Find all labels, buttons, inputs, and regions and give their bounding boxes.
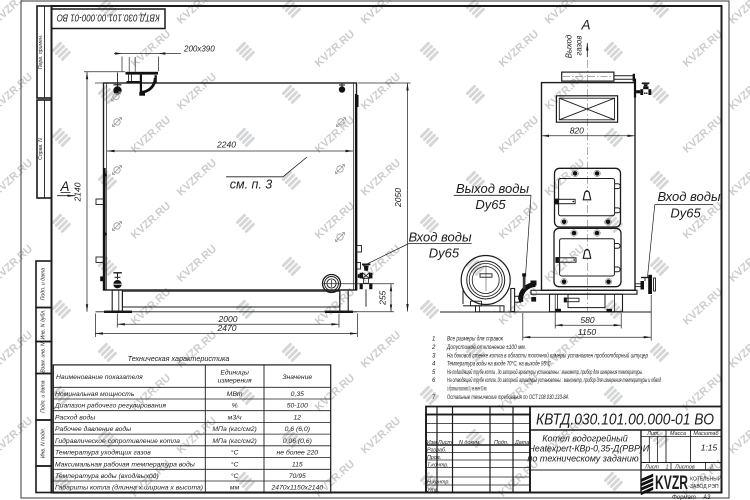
svg-text:Перв. примен.: Перв. примен. — [38, 35, 44, 69]
svg-text:Единицы: Единицы — [220, 369, 248, 377]
svg-text:Формат: Формат — [672, 495, 696, 500]
svg-text:На подводящей трубе котла ,: На подводящей трубе котла , до запорной … — [447, 369, 643, 376]
svg-text:МПа (кгс/см2): МПа (кгс/см2) — [212, 438, 256, 445]
svg-text:Рабочее давление воды: Рабочее давление воды — [55, 425, 131, 433]
svg-text:50-100: 50-100 — [287, 403, 308, 410]
svg-text:На отводящей трубе котла ,до з: На отводящей трубе котла ,до запорной ар… — [447, 377, 661, 384]
svg-text:115: 115 — [292, 461, 303, 468]
svg-text:Лит.: Лит. — [646, 431, 660, 437]
svg-text:°С: °С — [231, 460, 239, 468]
svg-text:Вход воды: Вход воды — [408, 230, 472, 245]
svg-text:2470х1150х2140: 2470х1150х2140 — [270, 485, 323, 492]
svg-text:м3/ч: м3/ч — [228, 414, 242, 421]
svg-text:820: 820 — [570, 126, 584, 136]
svg-text:°С: °С — [231, 449, 239, 457]
svg-text:255: 255 — [378, 290, 388, 305]
svg-text:Инв. N дубл.: Инв. N дубл. — [41, 309, 47, 339]
svg-text:не более 220: не более 220 — [277, 449, 319, 457]
svg-text:Все размеры для справок: Все размеры для справок — [447, 337, 504, 343]
svg-text:мм: мм — [230, 485, 240, 492]
svg-text:А3: А3 — [702, 495, 711, 500]
svg-text:Лист: Лист — [644, 464, 659, 470]
svg-text:2: 2 — [709, 464, 713, 470]
svg-text:ЗАВОД РЭП: ЗАВОД РЭП — [690, 484, 719, 490]
svg-text:Расход воды: Расход воды — [55, 413, 95, 421]
svg-text:Взам. инв. N: Взам. инв. N — [41, 342, 47, 372]
svg-text:2050: 2050 — [393, 188, 403, 208]
svg-text:Разраб.: Разраб. — [427, 447, 447, 453]
svg-text:КОТЕЛЬНЫЙ: КОТЕЛЬНЫЙ — [690, 475, 722, 483]
svg-text:Dy65: Dy65 — [670, 206, 701, 221]
svg-text:2240: 2240 — [216, 140, 236, 150]
svg-text:Диапазон рабочего регулировани: Диапазон рабочего регулирования — [54, 402, 166, 410]
svg-text:1: 1 — [432, 337, 435, 343]
svg-text:0,6 (6,0): 0,6 (6,0) — [285, 426, 310, 433]
svg-text:N докум.: N докум. — [459, 440, 481, 446]
svg-text:Справ. N: Справ. N — [38, 138, 44, 160]
svg-text:2: 2 — [431, 345, 436, 351]
svg-text:Дата: Дата — [514, 440, 529, 446]
svg-text:На боковой стенке котла в обла: На боковой стенке котла в области топочн… — [447, 352, 648, 359]
svg-text:Максимальная рабочая температу: Максимальная рабочая температура воды — [55, 460, 195, 468]
svg-text:МВт: МВт — [227, 391, 243, 398]
svg-text:0,06 (0,6): 0,06 (0,6) — [283, 438, 312, 445]
svg-text:2470: 2470 — [217, 323, 237, 333]
svg-text:Габариты котла (длинна х ширин: Габариты котла (длинна х ширина х высота… — [55, 484, 203, 492]
svg-text:Выход: Выход — [565, 34, 574, 58]
svg-text:Пров.: Пров. — [427, 455, 441, 461]
svg-text:А: А — [59, 179, 69, 194]
svg-text:Температура уходящих газов: Температура уходящих газов — [55, 449, 151, 457]
svg-text:Котел водогрейный: Котел водогрейный — [542, 434, 628, 444]
svg-text:с обратным клапаном D у не ме: с обратным клапаном D у не менее 50 мм. — [447, 387, 487, 393]
svg-text:Подп.: Подп. — [494, 440, 508, 446]
svg-text:МПа (кгс/см2): МПа (кгс/см2) — [212, 426, 256, 433]
svg-text:см. п. 3: см. п. 3 — [230, 178, 273, 192]
svg-text:0,35: 0,35 — [291, 391, 304, 398]
svg-text:Инв. N подл.: Инв. N подл. — [41, 428, 47, 458]
svg-text:1: 1 — [666, 464, 669, 470]
svg-text:Dy65: Dy65 — [429, 246, 460, 261]
svg-text:70/95: 70/95 — [289, 473, 306, 480]
svg-text:газов: газов — [575, 36, 584, 56]
svg-text:°С: °С — [231, 472, 239, 480]
svg-text:Техническая характеристика: Техническая характеристика — [128, 354, 230, 363]
svg-text:Допустимое отклонение ±100 мм: Допустимое отклонение ±100 мм. — [446, 345, 526, 351]
svg-text:200х390: 200х390 — [183, 45, 215, 54]
svg-text:Утв.: Утв. — [426, 487, 439, 493]
svg-text:KVZR: KVZR — [655, 473, 688, 494]
svg-text:Т.контр.: Т.контр. — [427, 462, 449, 468]
svg-text:Значение: Значение — [282, 374, 312, 381]
svg-text:%: % — [232, 403, 238, 410]
svg-text:Вход воды: Вход воды — [657, 189, 721, 204]
svg-text:А: А — [580, 18, 590, 33]
svg-text:Гидравлическое сопротивление к: Гидравлическое сопротивление котла — [55, 437, 180, 445]
svg-text:Н.контр.: Н.контр. — [427, 480, 450, 486]
svg-text:Dy65: Dy65 — [475, 197, 506, 212]
svg-text:1150: 1150 — [578, 327, 597, 337]
svg-text:Масштаб: Масштаб — [693, 431, 719, 437]
svg-text:2140: 2140 — [73, 182, 83, 202]
svg-text:Температура воды на входе 70°: Температура воды на входе 70°С, на выход… — [447, 362, 552, 368]
svg-text:Масса: Масса — [670, 431, 686, 437]
svg-text:Выход воды: Выход воды — [456, 181, 530, 196]
svg-text:Подп. и дата: Подп. и дата — [41, 380, 47, 413]
svg-text:Температура воды (вход/выход): Температура воды (вход/выход) — [55, 472, 159, 480]
svg-text:580: 580 — [580, 315, 594, 325]
svg-text:Heatexpert-КВр-0,35-Д(РВР)И: Heatexpert-КВр-0,35-Д(РВР)И — [529, 443, 650, 453]
svg-text:измерения: измерения — [218, 378, 252, 385]
svg-text:Номинальная мощность: Номинальная мощность — [55, 391, 135, 398]
svg-text:Изм.: Изм. — [427, 440, 439, 446]
svg-text:по техническому заданию: по техническому заданию — [527, 453, 638, 463]
svg-text:12: 12 — [294, 414, 302, 421]
svg-text:1:15: 1:15 — [701, 443, 718, 453]
svg-text:Листов: Листов — [674, 464, 695, 470]
svg-text:Подп. и дата: Подп. и дата — [41, 268, 47, 301]
svg-text:Лист: Лист — [437, 440, 452, 446]
svg-text:КВТД.030.101.00.000-01 ВО: КВТД.030.101.00.000-01 ВО — [536, 412, 714, 429]
svg-text:КВТД.030.101.00.000-01 ВО: КВТД.030.101.00.000-01 ВО — [57, 12, 160, 24]
svg-text:Наименование показателя: Наименование показателя — [56, 374, 143, 381]
svg-text:Остальные технические требован: Остальные технические требования по ОСТ … — [447, 395, 569, 401]
